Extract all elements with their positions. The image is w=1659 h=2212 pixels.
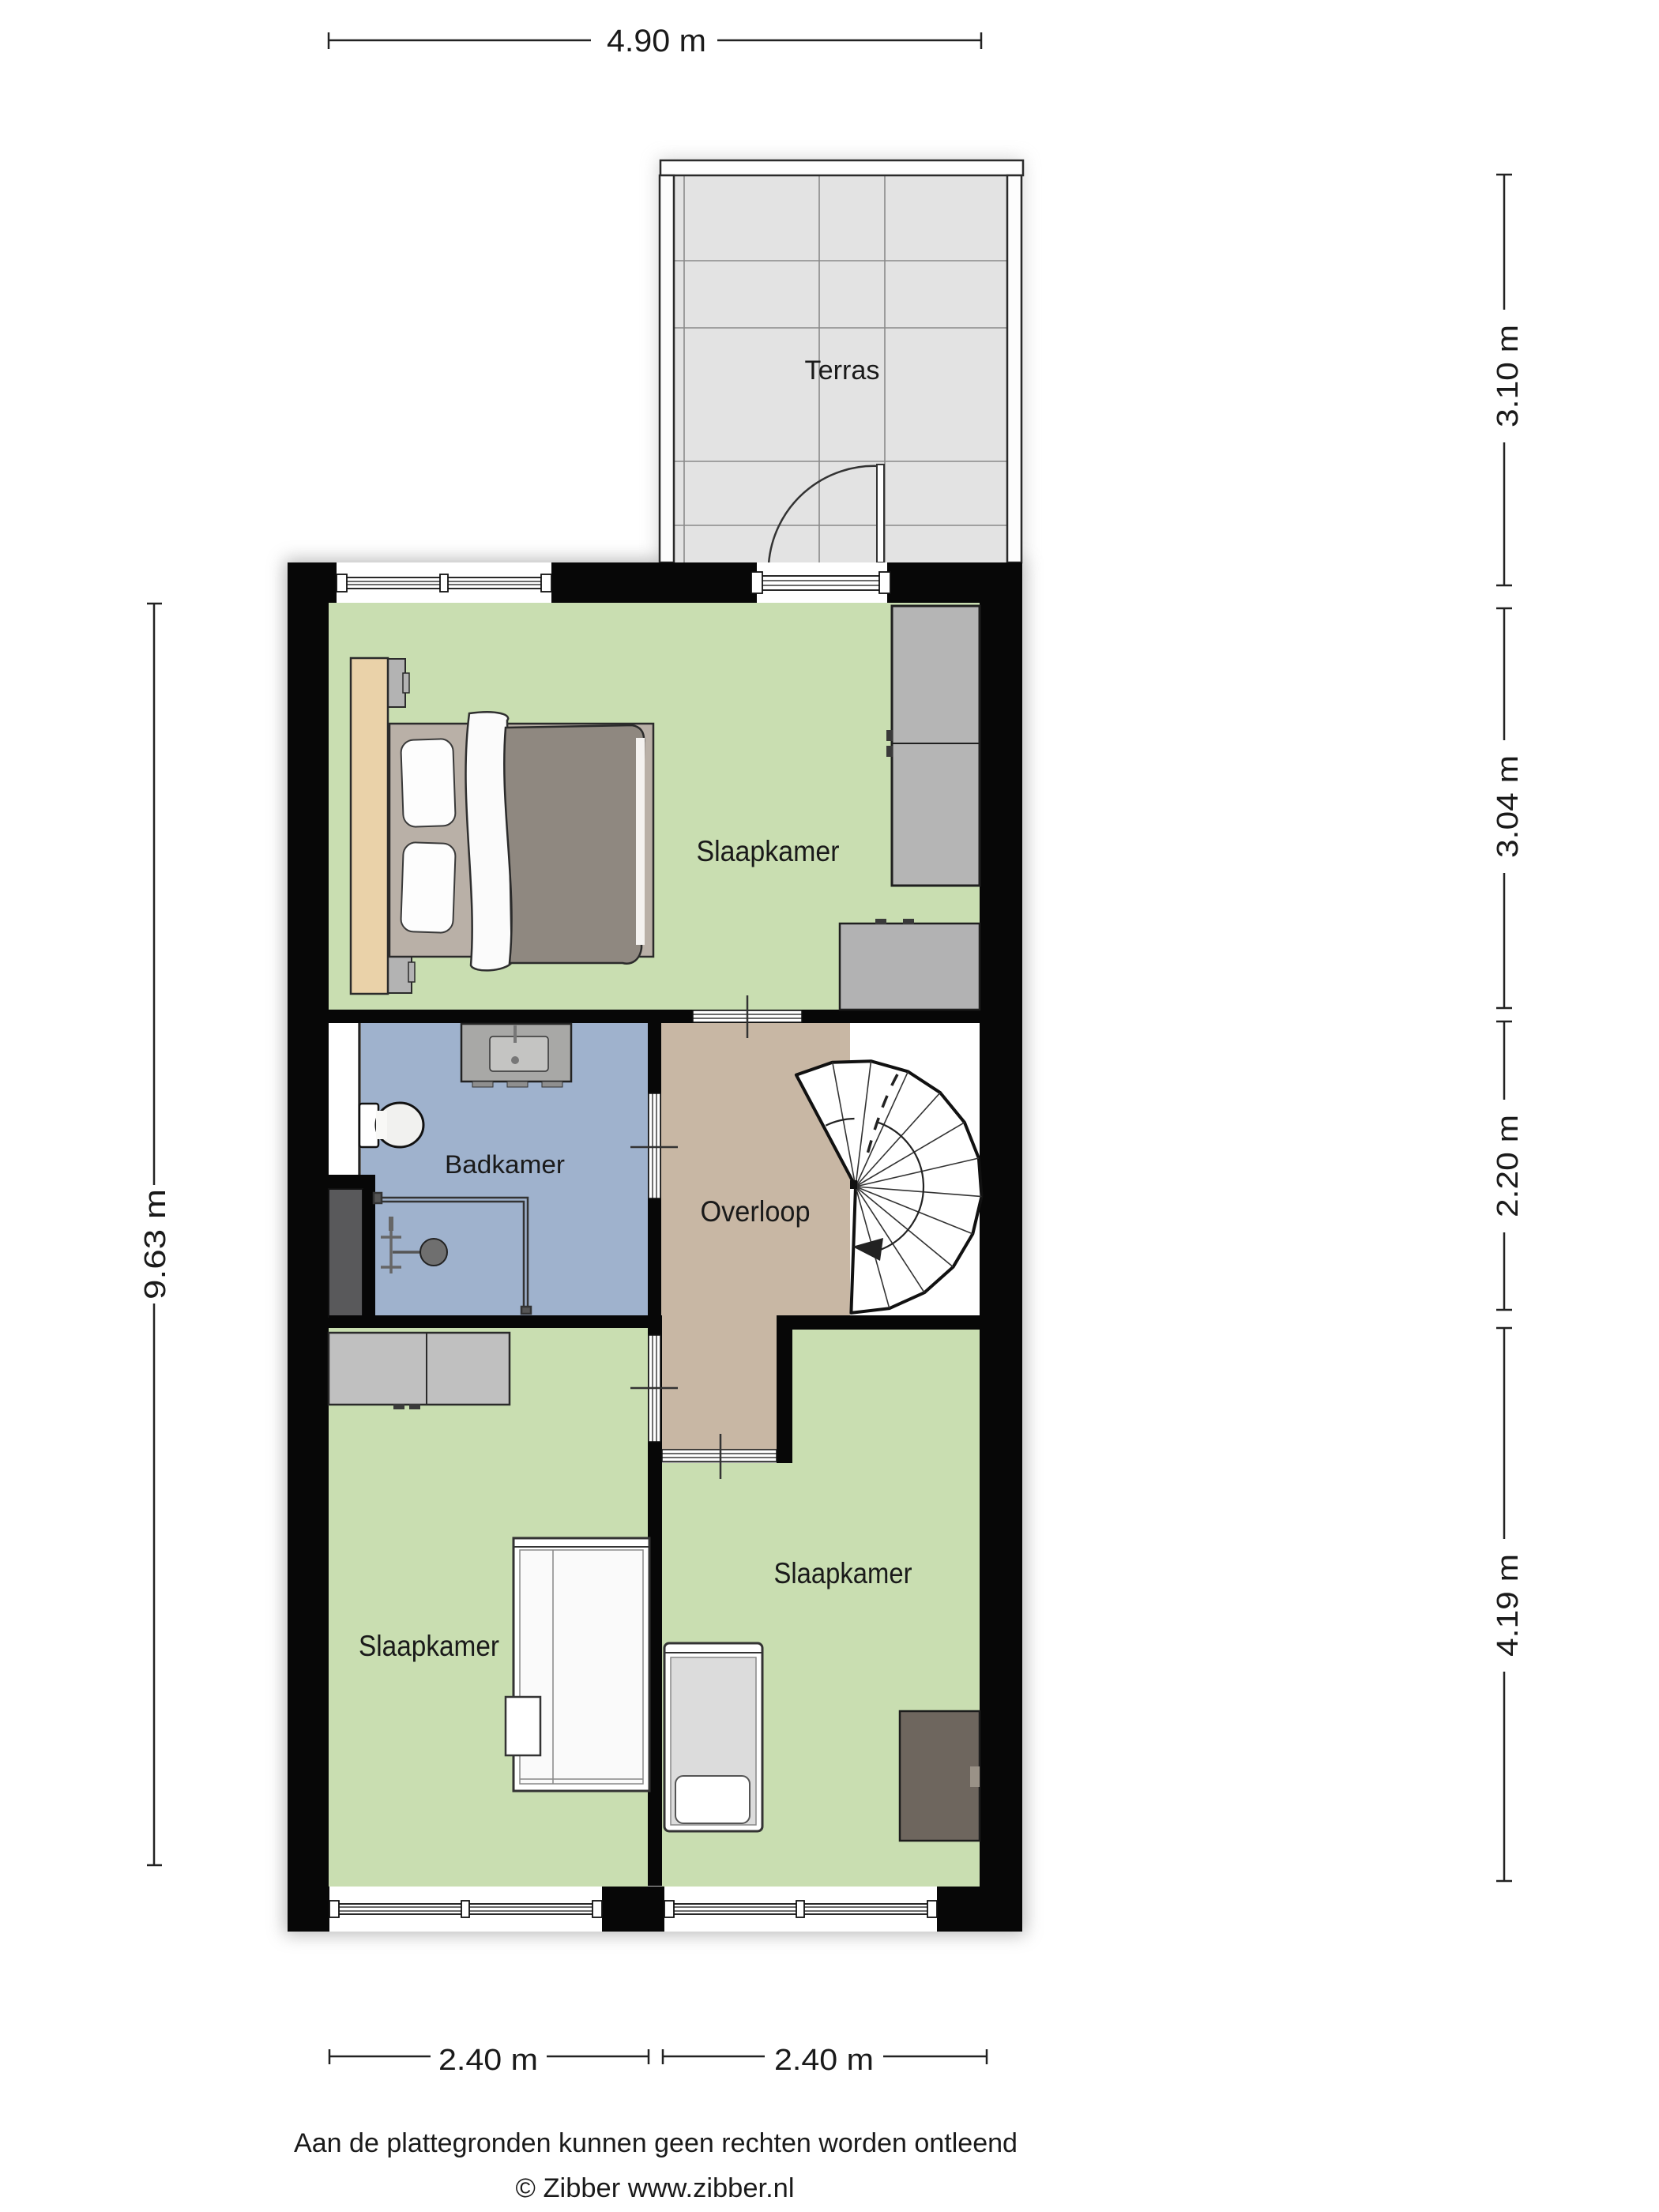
- svg-text:Slaapkamer: Slaapkamer: [359, 1630, 499, 1662]
- svg-text:4.90 m: 4.90 m: [607, 24, 706, 58]
- svg-text:Overloop: Overloop: [701, 1195, 811, 1228]
- svg-text:Aan de plattegronden kunnen ge: Aan de plattegronden kunnen geen rechten…: [294, 2128, 1018, 2158]
- svg-text:2.20 m: 2.20 m: [1492, 1115, 1525, 1217]
- svg-text:9.63 m: 9.63 m: [139, 1189, 172, 1300]
- svg-text:Slaapkamer: Slaapkamer: [697, 835, 840, 867]
- svg-text:4.19 m: 4.19 m: [1492, 1554, 1525, 1657]
- svg-text:3.04 m: 3.04 m: [1492, 755, 1525, 858]
- svg-text:Slaapkamer: Slaapkamer: [774, 1557, 912, 1589]
- svg-text:2.40 m: 2.40 m: [774, 2044, 874, 2077]
- svg-text:Badkamer: Badkamer: [445, 1150, 565, 1179]
- svg-text:© Zibber www.zibber.nl: © Zibber www.zibber.nl: [516, 2173, 795, 2203]
- svg-text:2.40 m: 2.40 m: [438, 2044, 538, 2077]
- svg-text:3.10 m: 3.10 m: [1492, 325, 1525, 427]
- svg-text:Terras: Terras: [805, 355, 880, 386]
